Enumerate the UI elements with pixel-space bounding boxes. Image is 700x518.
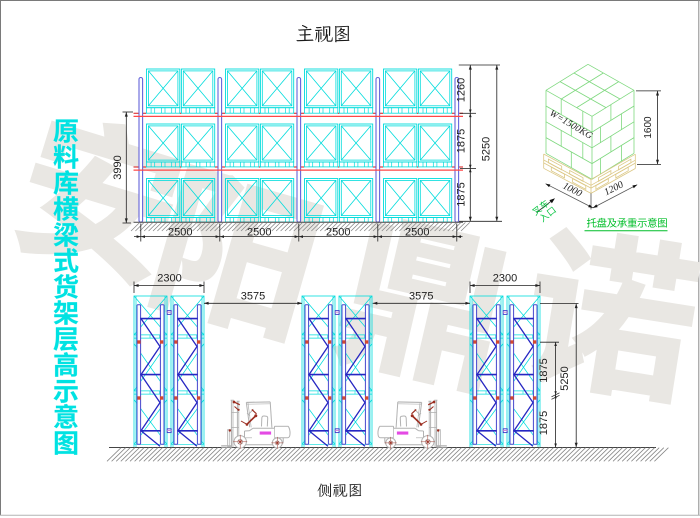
svg-text:5250: 5250 bbox=[559, 366, 571, 390]
svg-text:2300: 2300 bbox=[157, 273, 181, 285]
svg-text:2500: 2500 bbox=[326, 226, 350, 238]
svg-text:2300: 2300 bbox=[493, 273, 517, 285]
svg-text:1875: 1875 bbox=[456, 182, 468, 206]
svg-text:1875: 1875 bbox=[456, 129, 468, 153]
svg-text:2500: 2500 bbox=[405, 226, 429, 238]
svg-text:1260: 1260 bbox=[456, 78, 468, 102]
svg-text:3990: 3990 bbox=[112, 155, 124, 179]
svg-text:1600: 1600 bbox=[643, 116, 654, 139]
svg-text:3575: 3575 bbox=[241, 291, 265, 303]
svg-text:5250: 5250 bbox=[481, 137, 493, 161]
svg-text:1875: 1875 bbox=[538, 411, 550, 435]
svg-text:2500: 2500 bbox=[247, 226, 271, 238]
svg-text:1875: 1875 bbox=[538, 358, 550, 382]
svg-text:2500: 2500 bbox=[168, 226, 192, 238]
svg-text:3575: 3575 bbox=[409, 291, 433, 303]
